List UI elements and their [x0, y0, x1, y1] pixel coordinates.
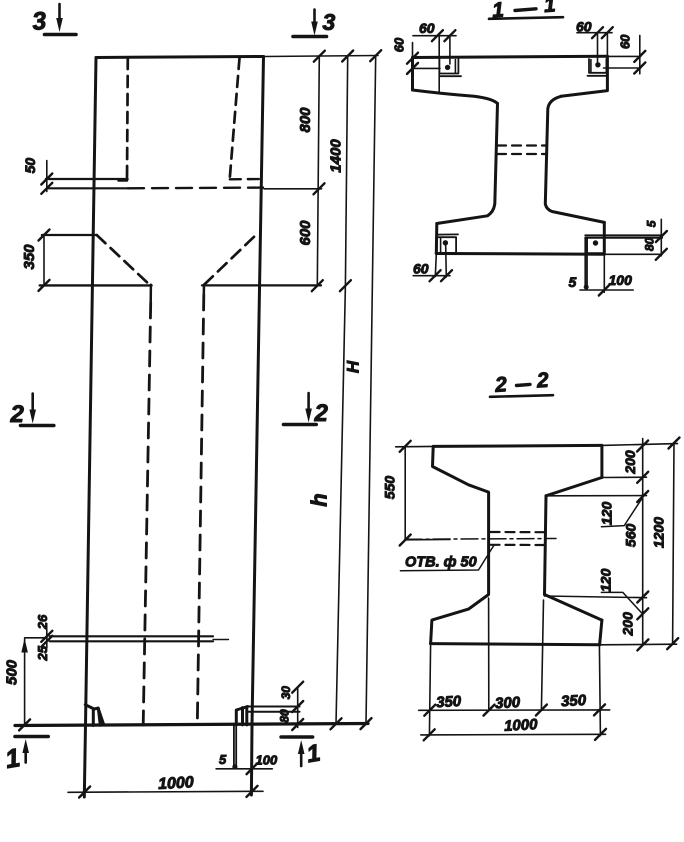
- svg-text:600: 600: [297, 220, 314, 246]
- svg-text:1200: 1200: [650, 517, 666, 548]
- svg-text:1000: 1000: [158, 774, 195, 793]
- svg-text:550: 550: [381, 476, 397, 500]
- svg-text:5: 5: [569, 274, 577, 290]
- svg-text:800: 800: [297, 107, 314, 133]
- svg-text:ОТВ. ф 50: ОТВ. ф 50: [405, 555, 477, 571]
- svg-text:30: 30: [279, 686, 293, 700]
- svg-text:h: h: [307, 493, 332, 506]
- svg-text:560: 560: [623, 524, 639, 548]
- svg-text:60: 60: [413, 261, 429, 277]
- svg-text:60: 60: [419, 20, 435, 36]
- svg-text:1: 1: [305, 739, 323, 768]
- svg-text:1: 1: [543, 0, 556, 17]
- svg-text:26: 26: [35, 614, 50, 630]
- svg-text:350: 350: [436, 693, 463, 711]
- svg-text:1400: 1400: [328, 139, 345, 173]
- svg-text:3: 3: [31, 7, 47, 36]
- svg-text:1000: 1000: [504, 716, 539, 735]
- svg-text:80: 80: [278, 709, 292, 723]
- svg-text:60: 60: [617, 34, 632, 49]
- svg-text:2: 2: [493, 373, 508, 397]
- svg-text:50: 50: [22, 158, 38, 174]
- svg-text:60: 60: [392, 37, 407, 52]
- svg-text:100: 100: [256, 753, 278, 768]
- svg-text:80: 80: [642, 237, 656, 251]
- svg-text:3: 3: [323, 9, 336, 35]
- svg-text:200: 200: [622, 450, 638, 475]
- svg-text:H: H: [344, 360, 363, 373]
- svg-text:300: 300: [495, 694, 522, 712]
- svg-text:100: 100: [609, 272, 633, 288]
- svg-text:1: 1: [3, 742, 22, 774]
- svg-text:350: 350: [21, 244, 38, 270]
- svg-text:120: 120: [598, 502, 614, 526]
- svg-text:2: 2: [314, 400, 329, 427]
- svg-text:120: 120: [598, 568, 614, 592]
- svg-text:500: 500: [3, 659, 20, 685]
- svg-text:200: 200: [620, 612, 636, 637]
- svg-text:5: 5: [219, 752, 227, 767]
- svg-text:5: 5: [644, 220, 658, 227]
- svg-text:25: 25: [35, 645, 50, 661]
- svg-text:350: 350: [561, 692, 588, 710]
- svg-text:2: 2: [535, 369, 550, 393]
